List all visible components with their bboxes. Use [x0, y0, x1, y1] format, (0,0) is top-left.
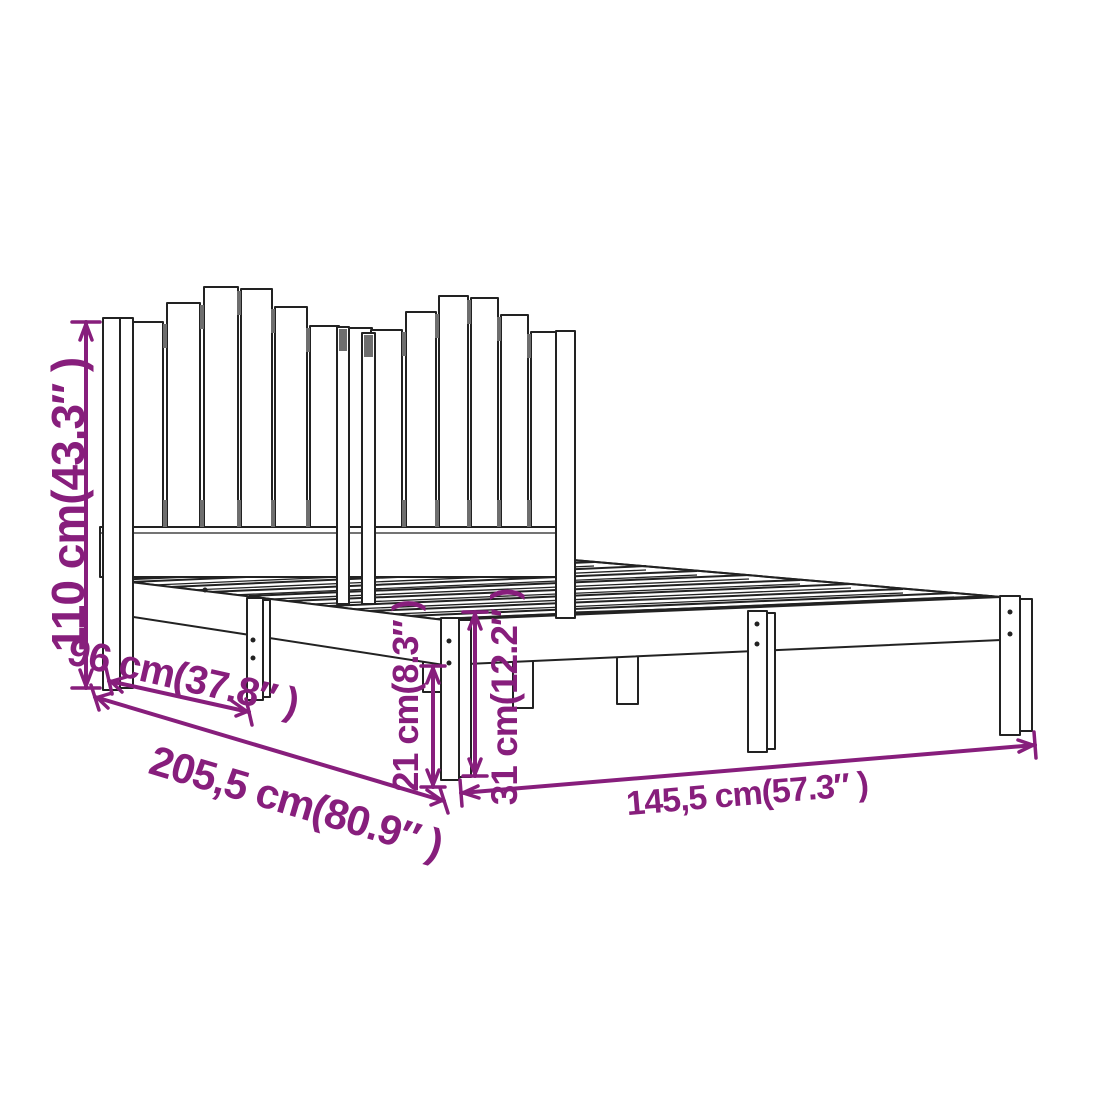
screw-dot — [203, 588, 208, 593]
dimension-31cm: 31 cm(12.2″ ) — [463, 589, 525, 806]
dimension-label-110cm: 110 cm(43.3″ ) — [42, 358, 94, 652]
headboard-slat — [241, 289, 272, 527]
headboard-slat — [167, 303, 200, 527]
far-corner-leg — [1000, 596, 1032, 735]
headboard-slat — [275, 307, 307, 527]
headboard-right-post — [556, 331, 575, 618]
headboard-left-post — [103, 318, 133, 690]
headboard-slat — [406, 312, 436, 527]
headboard-slat — [471, 298, 498, 527]
headboard-slat — [439, 296, 468, 527]
foot-middle-leg — [748, 611, 775, 752]
headboard-slats-right-group — [371, 296, 557, 527]
headboard-slats-left-group — [125, 287, 339, 527]
dimension-label-21cm: 21 cm(8.3″ ) — [385, 600, 426, 791]
headboard-slat — [501, 315, 528, 527]
diagram-canvas: 110 cm(43.3″ ) 96 cm(37.8″ ) 205,5 cm(80… — [0, 0, 1100, 1100]
headboard-slat — [531, 332, 557, 527]
dimension-label-145cm: 145,5 cm(57.3″ ) — [625, 765, 870, 823]
headboard-slat — [204, 287, 238, 527]
bed-dimension-diagram: 110 cm(43.3″ ) 96 cm(37.8″ ) 205,5 cm(80… — [0, 0, 1100, 1100]
headboard-slat — [310, 326, 339, 527]
dimension-label-31cm: 31 cm(12.2″ ) — [484, 589, 525, 806]
near-corner-leg — [441, 618, 471, 780]
